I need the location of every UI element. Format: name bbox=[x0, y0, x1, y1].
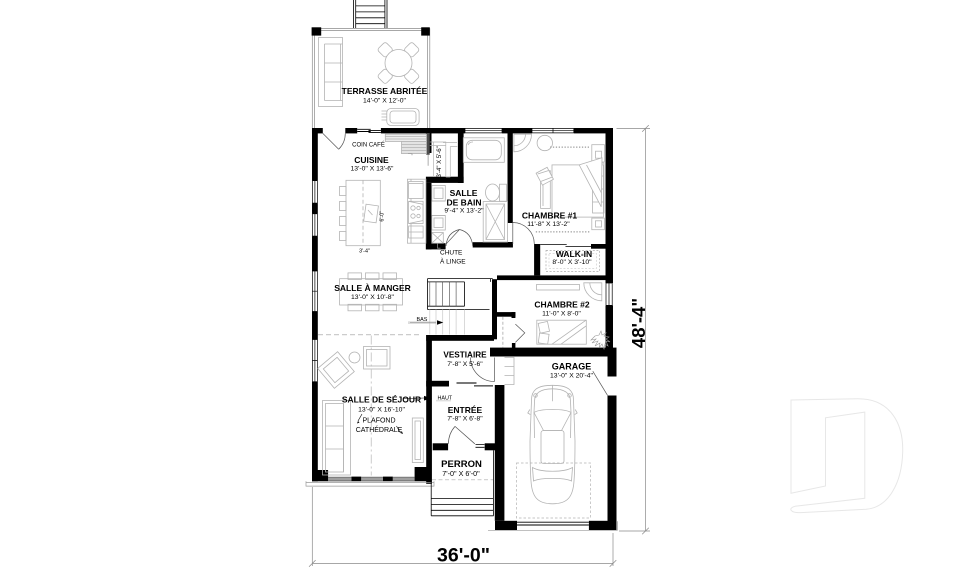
svg-text:PLAFOND: PLAFOND bbox=[362, 417, 395, 424]
svg-text:COIN CAFÉ: COIN CAFÉ bbox=[352, 142, 385, 149]
svg-text:CHUTE: CHUTE bbox=[440, 250, 463, 257]
svg-text:14'-0" X 12'-0": 14'-0" X 12'-0" bbox=[363, 98, 407, 105]
svg-text:36'-0": 36'-0" bbox=[437, 545, 490, 567]
svg-text:13'-0" X 20'-4": 13'-0" X 20'-4" bbox=[550, 373, 594, 380]
svg-text:8'-0" X 3'-10": 8'-0" X 3'-10" bbox=[552, 259, 592, 266]
svg-text:6'-0": 6'-0" bbox=[380, 211, 386, 222]
svg-text:7'-8" X 5'-6": 7'-8" X 5'-6" bbox=[447, 361, 483, 368]
svg-text:48'-4": 48'-4" bbox=[628, 298, 649, 348]
svg-text:11'-0" X 8'-0": 11'-0" X 8'-0" bbox=[542, 311, 581, 318]
svg-text:GARAGE: GARAGE bbox=[552, 361, 592, 371]
svg-text:CHAMBRE #1: CHAMBRE #1 bbox=[522, 210, 578, 220]
svg-text:TERRASSE ABRITÉE: TERRASSE ABRITÉE bbox=[342, 86, 428, 96]
svg-text:VESTIAIRE: VESTIAIRE bbox=[443, 351, 487, 360]
svg-text:ENTRÉE: ENTRÉE bbox=[448, 405, 483, 415]
svg-text:7'-8" X 6'-8": 7'-8" X 6'-8" bbox=[447, 416, 483, 423]
svg-text:13'-0" X 16'-10": 13'-0" X 16'-10" bbox=[358, 407, 405, 414]
svg-text:À LINGE: À LINGE bbox=[440, 257, 466, 266]
svg-text:3'-4": 3'-4" bbox=[359, 248, 370, 254]
svg-text:BAS: BAS bbox=[417, 317, 428, 323]
svg-text:13'-0" X 10'-8": 13'-0" X 10'-8" bbox=[351, 294, 395, 301]
svg-text:SALLE À MANGER: SALLE À MANGER bbox=[334, 283, 411, 293]
svg-text:CHAMBRE #2: CHAMBRE #2 bbox=[534, 300, 590, 310]
svg-text:DE BAIN: DE BAIN bbox=[447, 197, 482, 207]
svg-text:9'-4" X 13'-2": 9'-4" X 13'-2" bbox=[444, 208, 484, 215]
svg-text:7'-0" X 6'-0": 7'-0" X 6'-0" bbox=[442, 469, 480, 478]
svg-text:11'-8" X 13'-2": 11'-8" X 13'-2" bbox=[527, 221, 570, 228]
svg-text:WALK-IN: WALK-IN bbox=[556, 249, 592, 259]
svg-text:13'-0" X 13'-6": 13'-0" X 13'-6" bbox=[351, 165, 395, 172]
svg-text:CATHÉDRALE: CATHÉDRALE bbox=[356, 425, 403, 434]
svg-text:3'-4" X 5'-6": 3'-4" X 5'-6" bbox=[437, 146, 443, 177]
svg-text:SALLE DE SÉJOUR: SALLE DE SÉJOUR bbox=[342, 395, 421, 405]
svg-text:CUISINE: CUISINE bbox=[354, 155, 389, 165]
